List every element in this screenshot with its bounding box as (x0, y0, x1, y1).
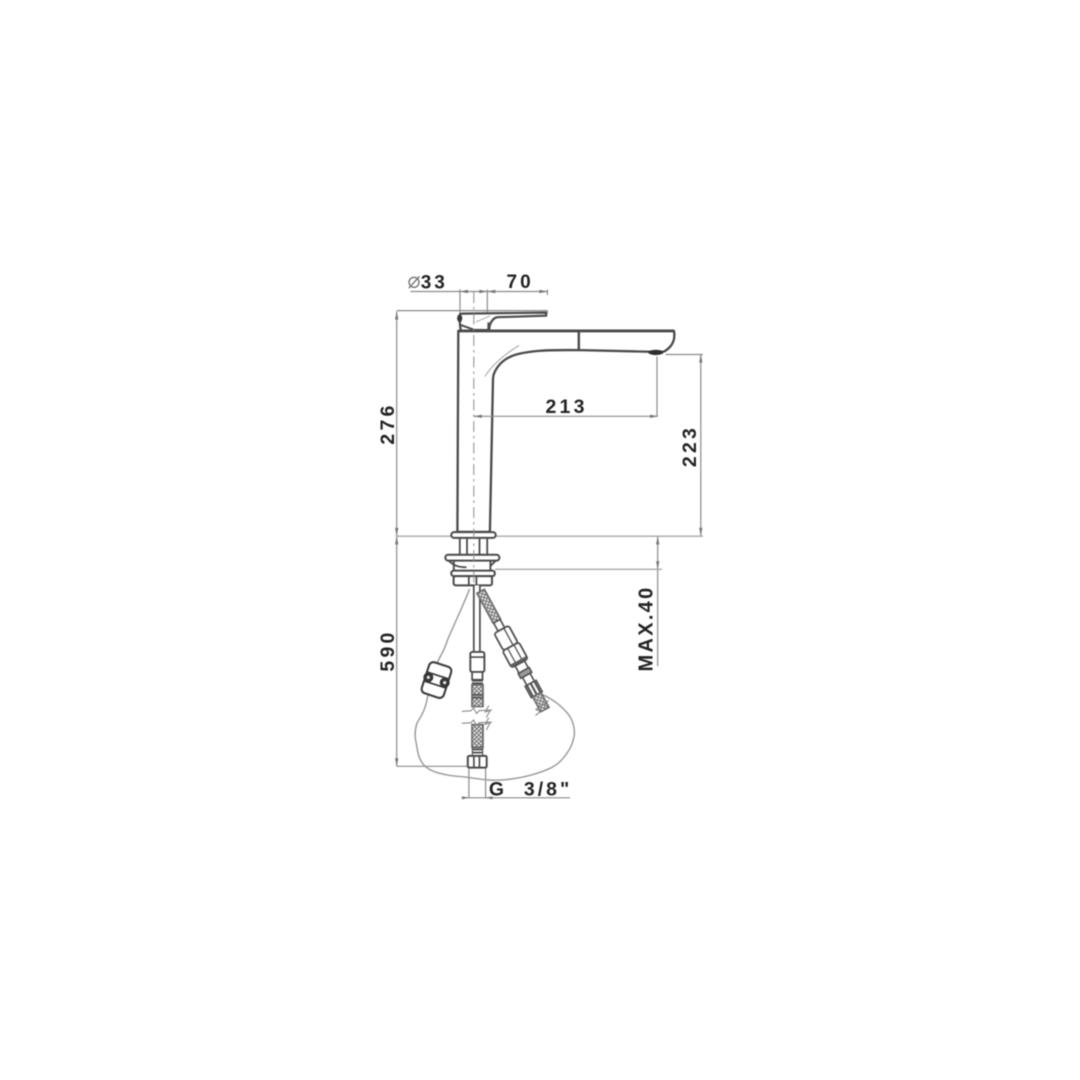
svg-text:33: 33 (421, 273, 448, 294)
svg-text:MAX.40: MAX.40 (636, 585, 658, 671)
svg-text:276: 276 (377, 402, 399, 444)
svg-text:70: 70 (507, 272, 534, 293)
svg-text:213: 213 (546, 396, 588, 418)
svg-text:590: 590 (377, 629, 399, 671)
svg-text:G 3/8": G 3/8" (489, 779, 572, 801)
svg-text:223: 223 (679, 425, 701, 467)
